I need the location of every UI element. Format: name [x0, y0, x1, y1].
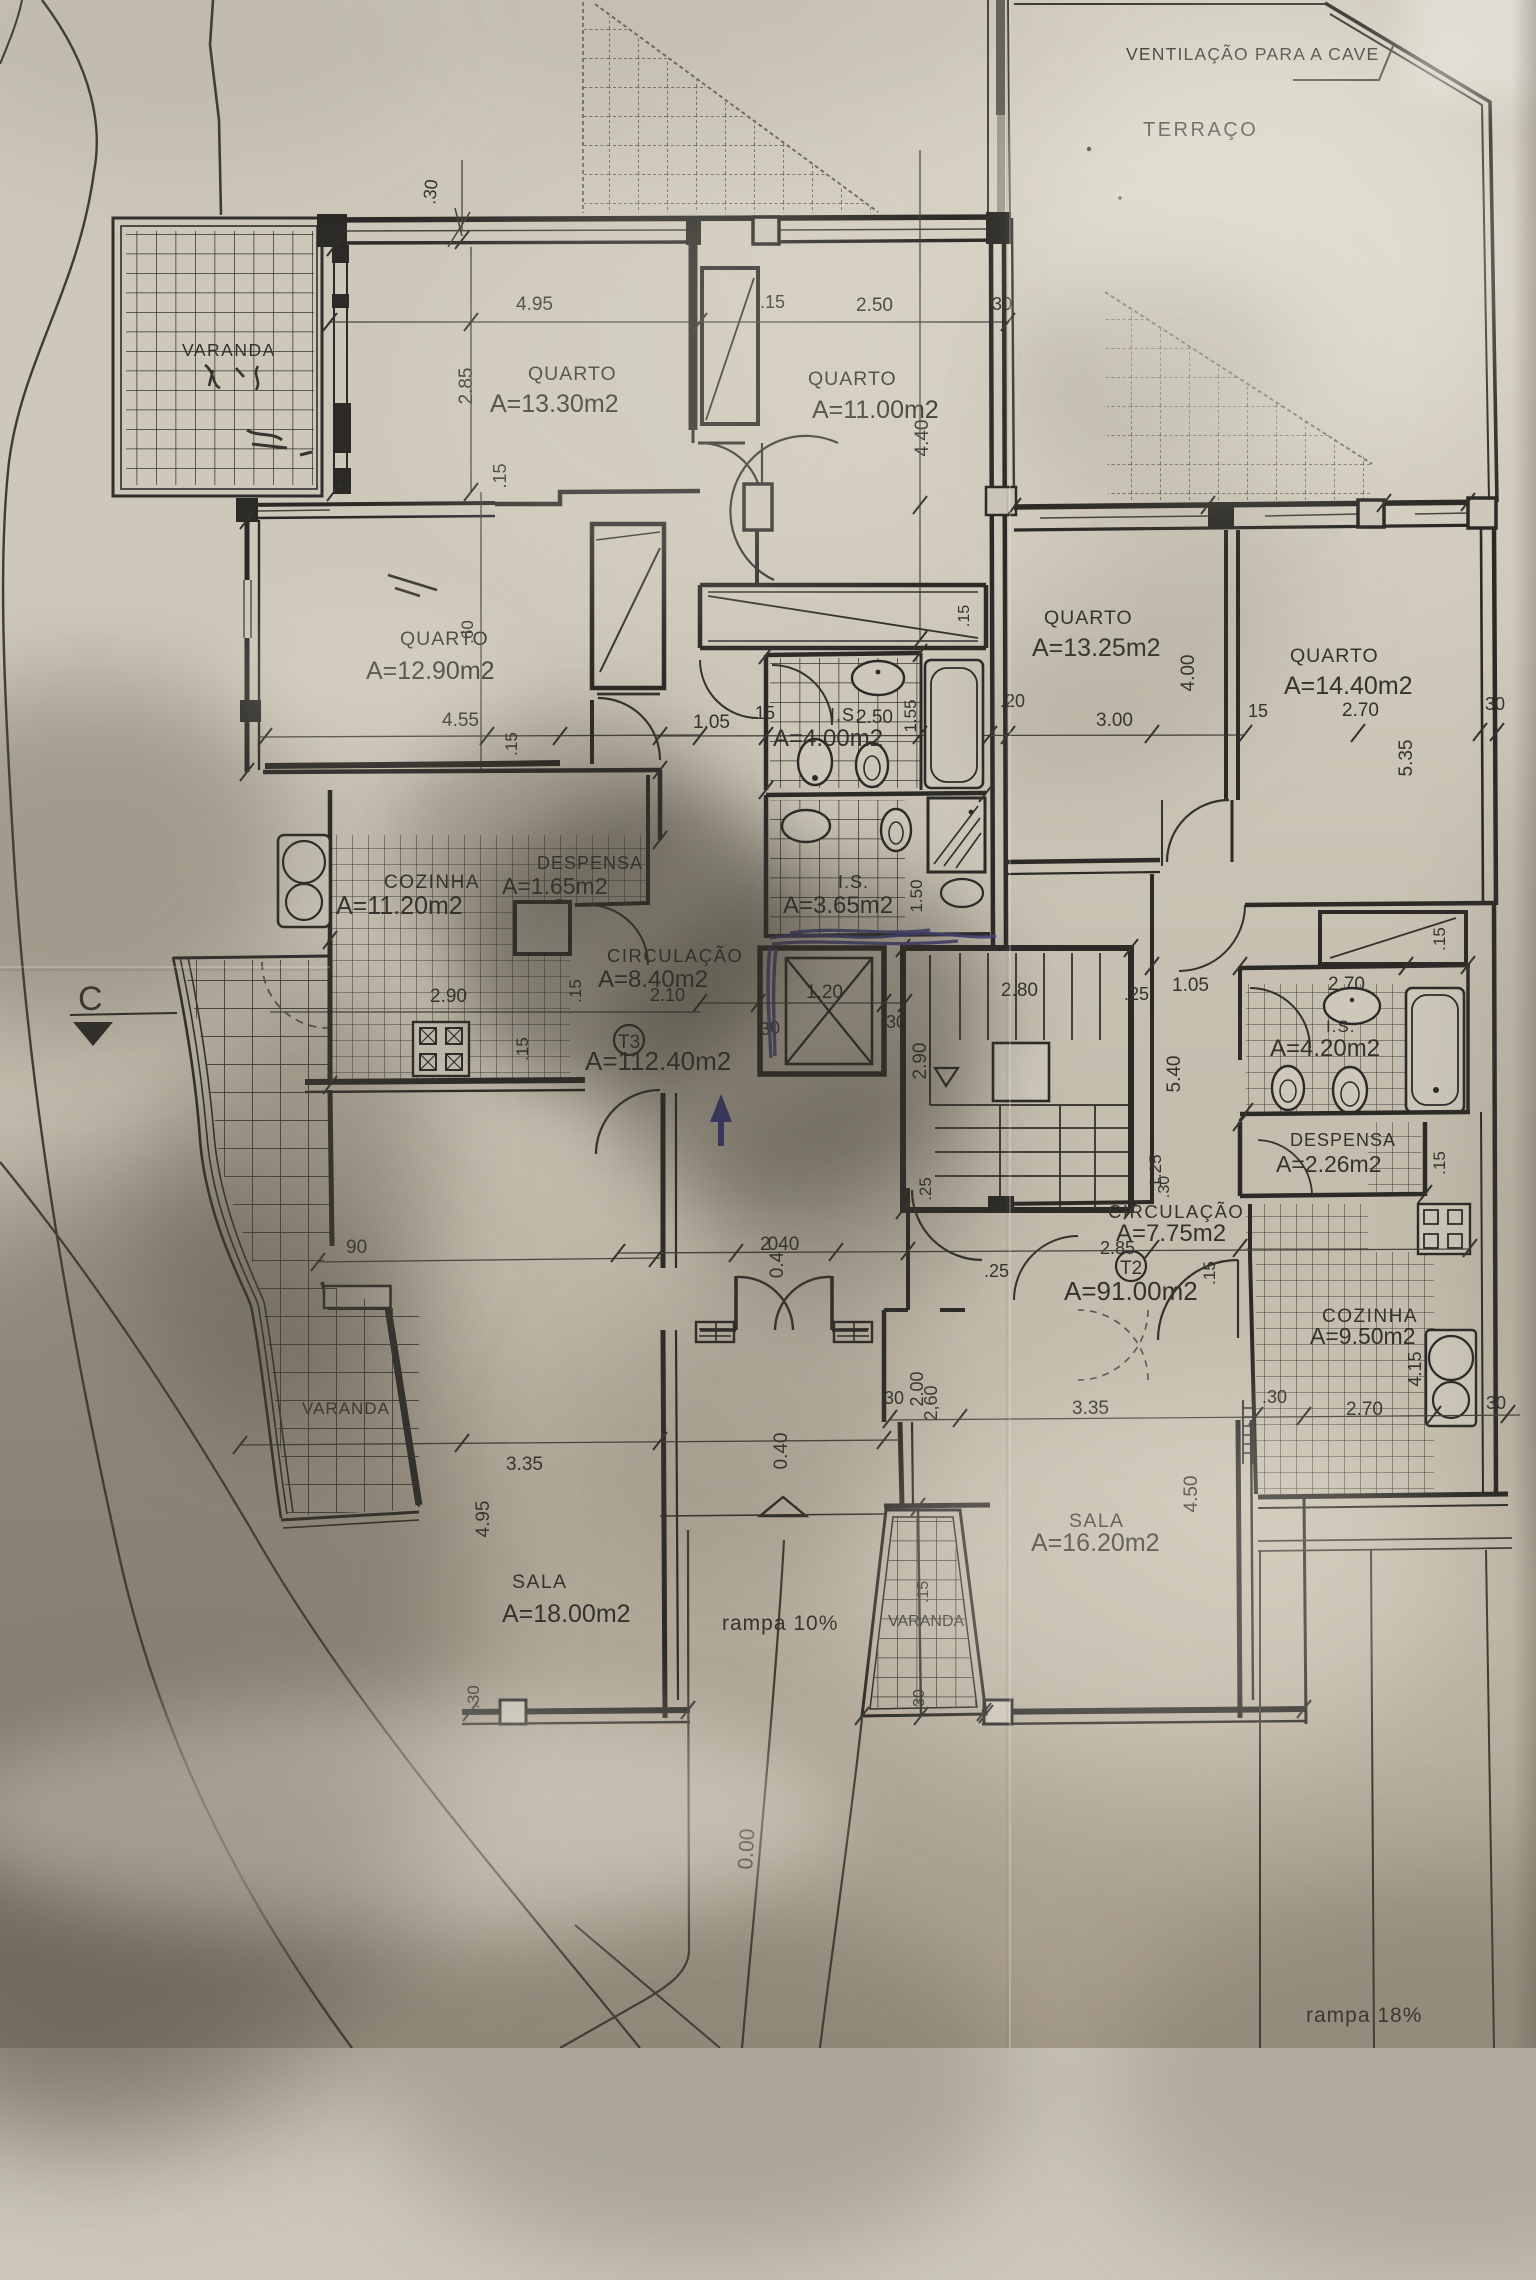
- svg-text:.25: .25: [984, 1261, 1009, 1281]
- svg-text:A=3.65m2: A=3.65m2: [783, 892, 893, 919]
- svg-text:2.85: 2.85: [1100, 1238, 1135, 1258]
- svg-text:A=9.50m2: A=9.50m2: [1310, 1323, 1416, 1349]
- svg-text:2.80: 2.80: [1001, 980, 1038, 1001]
- svg-text:3.00: 3.00: [1096, 710, 1133, 731]
- svg-text:4.55: 4.55: [442, 710, 479, 731]
- svg-text:A=13.30m2: A=13.30m2: [490, 390, 619, 418]
- svg-text:.30: .30: [1262, 1387, 1287, 1407]
- svg-text:2,60: 2,60: [921, 1385, 941, 1420]
- svg-text:QUARTO: QUARTO: [1290, 645, 1379, 667]
- svg-text:A=14.40m2: A=14.40m2: [1284, 672, 1413, 700]
- svg-text:15: 15: [1248, 701, 1268, 721]
- svg-text:A=16.20m2: A=16.20m2: [1031, 1529, 1160, 1557]
- svg-text:2.85: 2.85: [456, 368, 477, 405]
- svg-text:4.00: 4.00: [1178, 655, 1199, 692]
- svg-text:0.40: 0.40: [771, 1433, 792, 1470]
- svg-text:VARANDA: VARANDA: [182, 340, 276, 360]
- svg-text:rampa 18%: rampa 18%: [1306, 2004, 1422, 2027]
- svg-text:TERRAÇO: TERRAÇO: [1143, 119, 1258, 141]
- svg-text:.30: .30: [1156, 1176, 1173, 1198]
- svg-text:2.10: 2.10: [650, 985, 685, 1005]
- svg-text:.25: .25: [1124, 984, 1149, 1004]
- svg-text:30: 30: [884, 1388, 904, 1408]
- svg-text:DESPENSA: DESPENSA: [1290, 1130, 1396, 1150]
- svg-text:3.35: 3.35: [506, 1454, 543, 1475]
- svg-text:0.00: 0.00: [734, 1828, 759, 1870]
- svg-text:VARANDA: VARANDA: [888, 1613, 964, 1630]
- svg-text:.30: .30: [419, 178, 442, 205]
- svg-text:rampa 10%: rampa 10%: [722, 1612, 838, 1635]
- svg-text:90: 90: [346, 1237, 367, 1258]
- svg-text:A=91.00m2: A=91.00m2: [1064, 1276, 1198, 1306]
- svg-text:I.S.: I.S.: [838, 872, 869, 892]
- svg-text:QUARTO: QUARTO: [528, 363, 617, 385]
- svg-text:.60: .60: [458, 620, 477, 644]
- svg-text:.30: .30: [464, 1685, 483, 1709]
- svg-text:SALA: SALA: [512, 1571, 567, 1593]
- svg-text:A=112.40m2: A=112.40m2: [585, 1046, 731, 1076]
- svg-text:A=4.20m2: A=4.20m2: [1270, 1035, 1380, 1062]
- svg-text:1.05: 1.05: [693, 712, 730, 733]
- svg-text:2.50: 2.50: [856, 295, 893, 316]
- svg-text:VENTILAÇÃO PARA A CAVE: VENTILAÇÃO PARA A CAVE: [1126, 43, 1379, 64]
- svg-text:QUARTO: QUARTO: [808, 368, 897, 390]
- svg-text:A=2.26m2: A=2.26m2: [1276, 1151, 1382, 1177]
- svg-text:1.50: 1.50: [907, 879, 926, 912]
- svg-text:2.90: 2.90: [910, 1043, 931, 1080]
- svg-text:0.4: 0.4: [767, 1251, 788, 1278]
- svg-text:CIRCULAÇÃO: CIRCULAÇÃO: [607, 945, 743, 966]
- svg-text:.15: .15: [502, 732, 521, 756]
- svg-text:.15: .15: [1430, 927, 1449, 951]
- svg-text:QUARTO: QUARTO: [1044, 607, 1133, 629]
- svg-text:A=11.20m2: A=11.20m2: [336, 892, 463, 920]
- svg-text:A=12.90m2: A=12.90m2: [366, 657, 495, 685]
- svg-text:A=4.00m2: A=4.00m2: [773, 725, 883, 752]
- svg-text:5.35: 5.35: [1396, 740, 1417, 777]
- svg-text:C: C: [78, 980, 103, 1018]
- svg-text:A=1.65m2: A=1.65m2: [502, 873, 608, 899]
- svg-text:.15: .15: [513, 1037, 532, 1061]
- svg-text:30: 30: [1486, 1393, 1506, 1413]
- svg-text:3.35: 3.35: [1072, 1398, 1109, 1419]
- svg-text:4.95: 4.95: [473, 1501, 494, 1538]
- svg-text:.15: .15: [915, 1581, 932, 1603]
- svg-text:.15: .15: [956, 605, 973, 627]
- svg-text:4.95: 4.95: [516, 294, 553, 315]
- svg-text:1.05: 1.05: [1172, 975, 1209, 996]
- svg-text:.20: .20: [1000, 691, 1025, 711]
- svg-text:DESPENSA: DESPENSA: [537, 853, 643, 873]
- svg-text:I.S.: I.S.: [1326, 1017, 1356, 1036]
- svg-text:.15: .15: [1430, 1151, 1449, 1175]
- svg-text:.15: .15: [490, 463, 510, 488]
- svg-text:5.40: 5.40: [1164, 1056, 1185, 1093]
- svg-text:.25: .25: [916, 1177, 935, 1201]
- svg-text:4.15: 4.15: [1405, 1351, 1425, 1386]
- svg-text:1.20: 1.20: [806, 982, 843, 1003]
- svg-text:A=18.00m2: A=18.00m2: [502, 1600, 631, 1628]
- svg-text:2.70: 2.70: [1346, 1399, 1383, 1420]
- svg-text:4.40: 4.40: [912, 420, 933, 457]
- svg-text:A=13.25m2: A=13.25m2: [1032, 634, 1161, 662]
- svg-text:30: 30: [911, 1689, 928, 1707]
- svg-text:.15: .15: [760, 292, 785, 312]
- svg-text:VARANDA: VARANDA: [302, 1399, 390, 1418]
- svg-text:COZINHA: COZINHA: [384, 872, 480, 893]
- svg-text:2.70: 2.70: [1342, 700, 1379, 721]
- svg-text:4.50: 4.50: [1181, 1476, 1202, 1513]
